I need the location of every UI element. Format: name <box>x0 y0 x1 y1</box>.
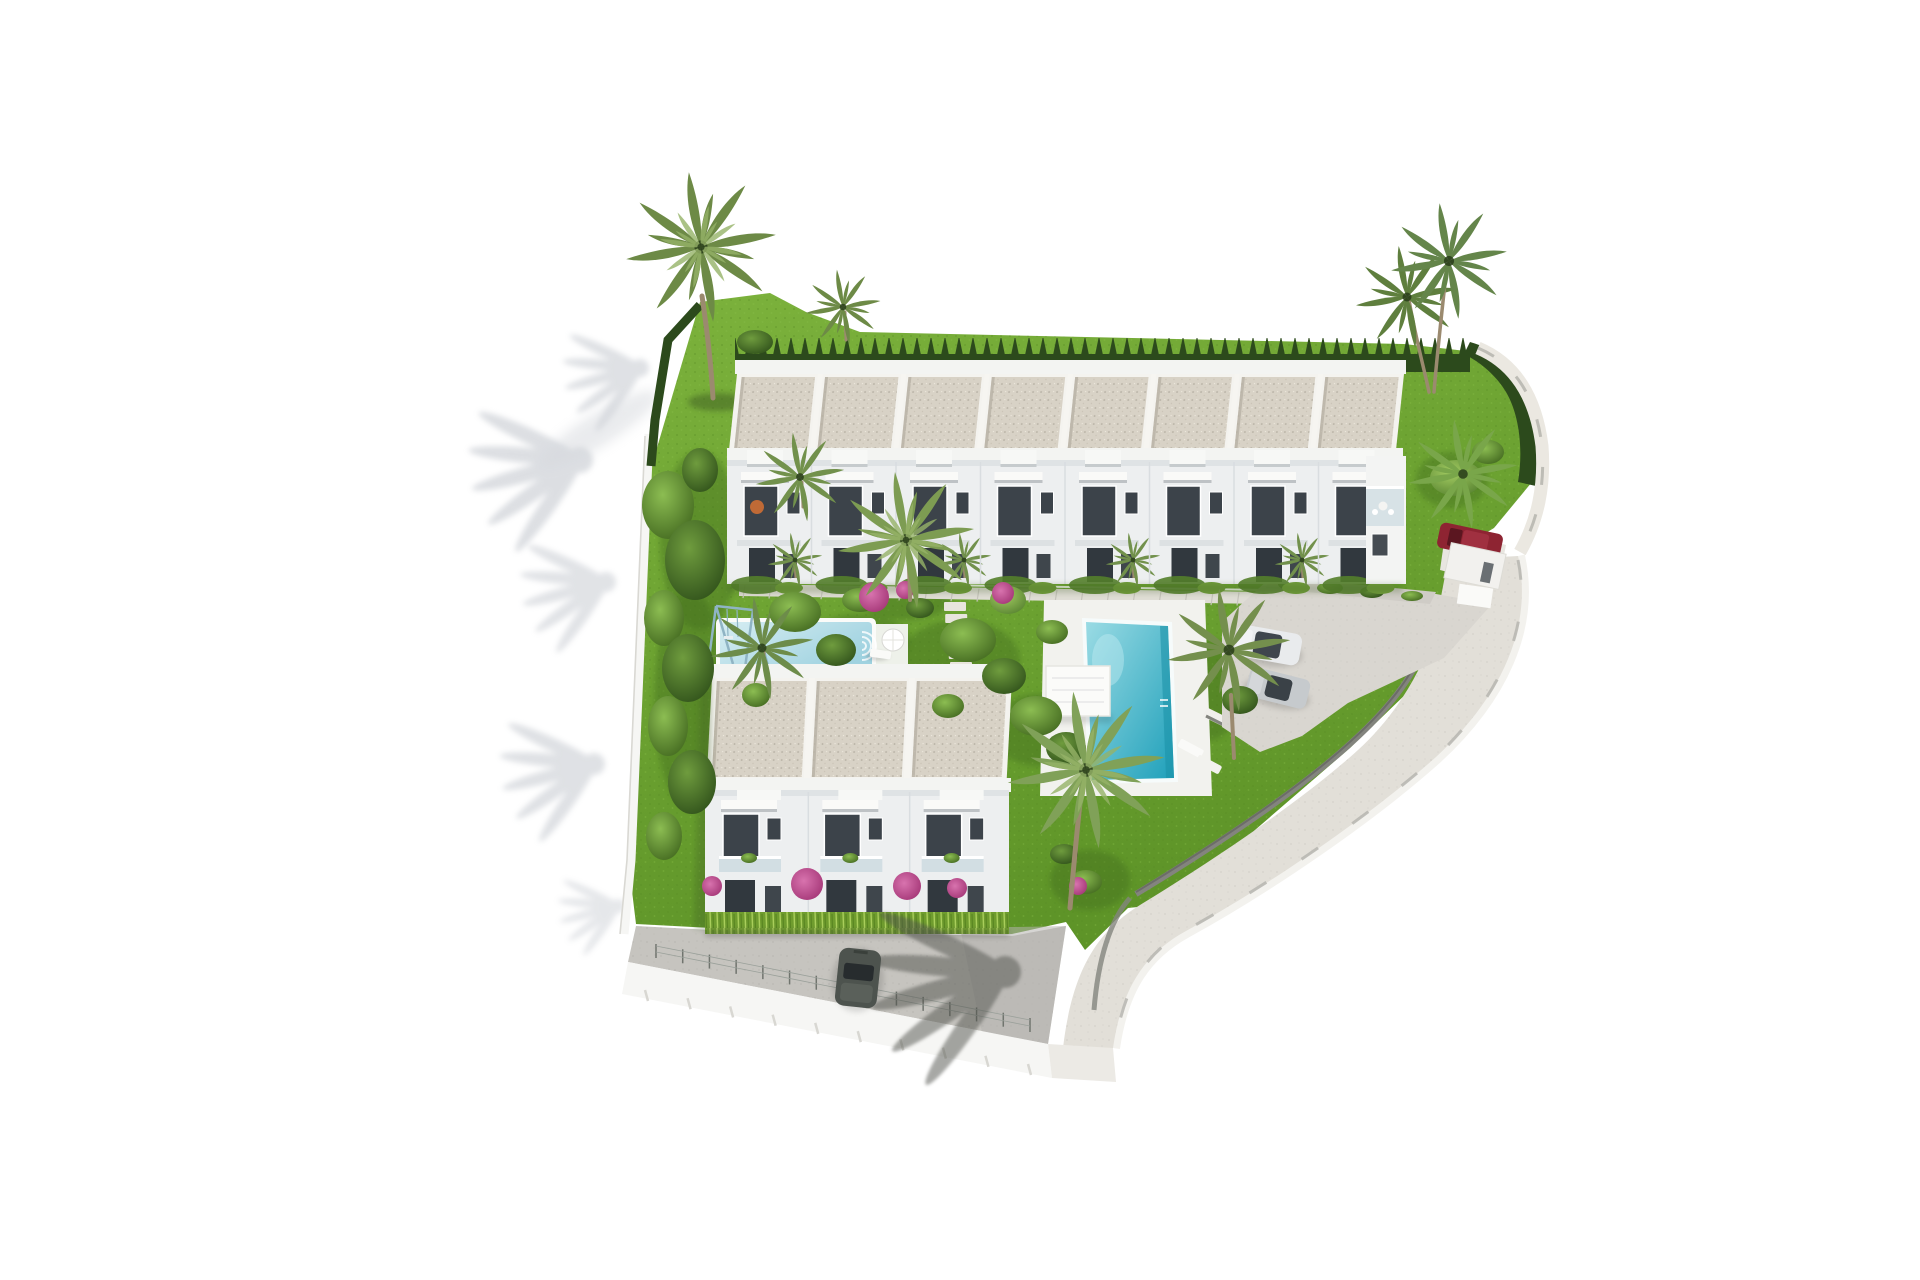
terrace-table <box>1379 502 1388 511</box>
tree <box>932 694 964 718</box>
small-window <box>1294 492 1307 514</box>
small-window <box>1125 492 1138 514</box>
lower-townhouse-block <box>694 664 1012 937</box>
ground-window <box>826 880 856 916</box>
upper-window <box>1336 486 1370 536</box>
render-canvas <box>0 0 1920 1280</box>
upper-window <box>824 814 860 858</box>
front-parapet <box>705 778 1011 792</box>
upper-window <box>998 486 1032 536</box>
bougainvillea-bush <box>702 876 722 896</box>
balcony-plant <box>842 853 858 863</box>
upper-window <box>723 814 759 858</box>
small-window <box>970 818 984 840</box>
ground-window <box>866 886 882 912</box>
bougainvillea-bush <box>947 878 967 898</box>
tree <box>940 618 996 662</box>
ground-window <box>1037 554 1051 578</box>
awning <box>924 800 980 809</box>
tree <box>648 696 688 756</box>
ground-window <box>765 886 781 912</box>
bougainvillea-bush <box>791 868 823 900</box>
tree <box>646 812 682 860</box>
bougainvillea-bush <box>893 872 921 900</box>
ground-window <box>1206 554 1220 578</box>
upper-window <box>1082 486 1116 536</box>
balcony-plant <box>944 853 960 863</box>
tree <box>816 634 856 666</box>
small-window <box>868 818 882 840</box>
ground-window <box>725 880 755 916</box>
tree <box>1036 620 1068 644</box>
tree <box>668 750 716 814</box>
upper-window <box>829 486 863 536</box>
small-window <box>1041 492 1054 514</box>
front-parapet <box>727 448 1403 462</box>
small-window <box>767 818 781 840</box>
townhouse-row-top <box>727 360 1406 594</box>
awning <box>1164 472 1212 480</box>
tree <box>982 658 1026 694</box>
awning <box>910 472 958 480</box>
rear-parapet <box>735 360 1406 374</box>
upper-window <box>926 814 962 858</box>
small-window <box>1210 492 1223 514</box>
upper-window <box>1251 486 1285 536</box>
townhouse-row-top-roofs <box>729 374 1404 452</box>
tree <box>662 634 714 702</box>
balcony-plant <box>741 853 757 863</box>
awning <box>721 800 777 809</box>
tree <box>665 520 725 600</box>
tree <box>682 448 718 492</box>
end-unit-side-terrace <box>1366 456 1406 584</box>
flowering-shrub <box>750 500 764 514</box>
tree <box>742 683 770 707</box>
small-window <box>872 492 885 514</box>
awning <box>822 800 878 809</box>
bougainvillea-bush <box>992 582 1014 604</box>
ground-window <box>968 886 984 912</box>
upper-window <box>1167 486 1201 536</box>
site-plan-render <box>0 0 1920 1280</box>
building-cast-shadow <box>727 584 1403 593</box>
small-window <box>956 492 969 514</box>
awning <box>1248 472 1296 480</box>
awning <box>1079 472 1127 480</box>
tree <box>1010 696 1062 736</box>
awning <box>995 472 1043 480</box>
